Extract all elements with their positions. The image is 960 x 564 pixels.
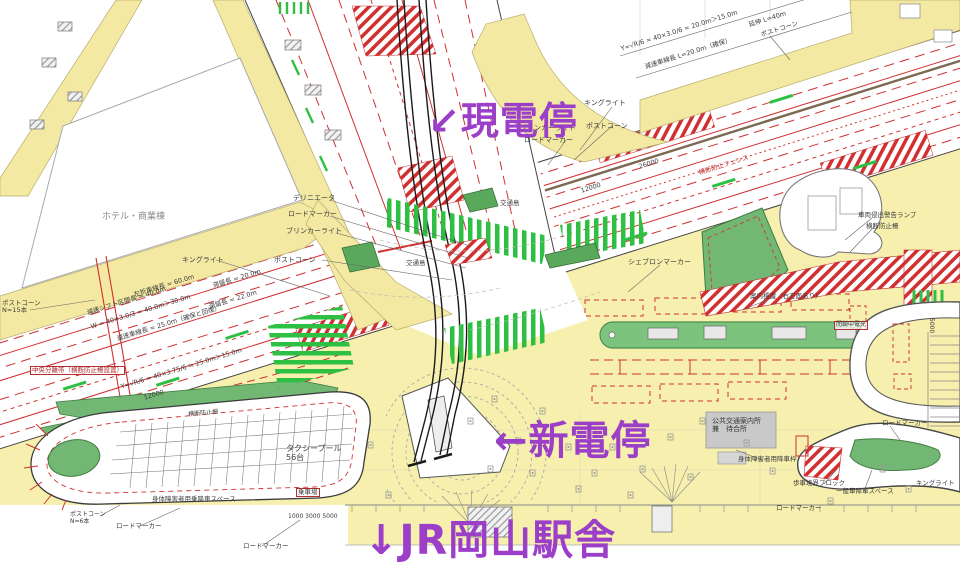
label-chevron: シェブロンマーカー — [628, 258, 691, 266]
label-denko: 閉鎖中電光 — [834, 321, 868, 330]
annotation-jr-station: ↓JR岡山駅舎 — [364, 506, 616, 564]
right-upper-loop — [850, 302, 960, 422]
label-annai: 案内標識（右方面あり） — [750, 293, 822, 300]
label-taxi-pool: タクシープール 56台 — [286, 444, 342, 462]
label-koutsujima-1: 交通島 — [500, 200, 520, 207]
label-roadmarker-1: ロードマーカー — [288, 210, 337, 218]
label-roadmarker-b2: ロードマーカー — [243, 543, 289, 550]
label-roadmarker-b1: ロードマーカー — [116, 523, 162, 530]
label-postcone-left: ポストコーン N=15本 — [2, 300, 41, 315]
label-roadmarker-r2: ロードマーカー — [776, 505, 822, 512]
label-koutsujima-2: 交通島 — [406, 260, 426, 267]
annotation-current-tram-stop: ↙現電停 — [428, 90, 578, 145]
label-ippan-drop: 一般車降車スペース — [836, 488, 894, 495]
label-dim-5000: 5000 — [927, 318, 934, 333]
label-delineator: デリニエータ — [293, 194, 335, 202]
site-plan-screenshot: ホテル・商業棟キングライトポストコーン N=15本デリニエータロードマーカーブリ… — [0, 0, 960, 564]
label-kinglight-1: キングライト — [182, 256, 224, 264]
label-blinker-1: ブリンカーライト — [286, 227, 342, 235]
label-kinglight-genden: キングライト — [584, 99, 626, 107]
label-shintai-left: 身体障害者用乗降車スペース — [152, 496, 236, 503]
label-koukyo-box: 公共交通案内所 兼 待合所 — [712, 417, 761, 433]
label-postcone-b: ポストコーン N=6本 — [70, 512, 106, 526]
label-shintai-right: 身体障害者用降車枠 — [738, 456, 797, 463]
label-postcone-2: ポストコーン — [274, 256, 316, 264]
label-jousha: 乗車場 — [296, 488, 320, 497]
annotation-new-tram-stop: ←新電停 — [494, 408, 652, 466]
label-oudan-right: 横断防止柵 — [866, 223, 899, 230]
label-kinglight-br: キングライト — [916, 480, 955, 487]
label-dims-bottom: 1000 3000 5000 — [288, 514, 338, 521]
label-warn-lamp: 車両侵出警告ランプ — [858, 212, 916, 219]
label-postcone-genden: ポストコーン — [586, 122, 628, 130]
label-hotel: ホテル・商業棟 — [102, 212, 165, 222]
label-roadmarker-r1: ロードマーカー — [882, 420, 928, 427]
label-median: 中央分離帯（横断防止柵設置） — [30, 366, 125, 375]
